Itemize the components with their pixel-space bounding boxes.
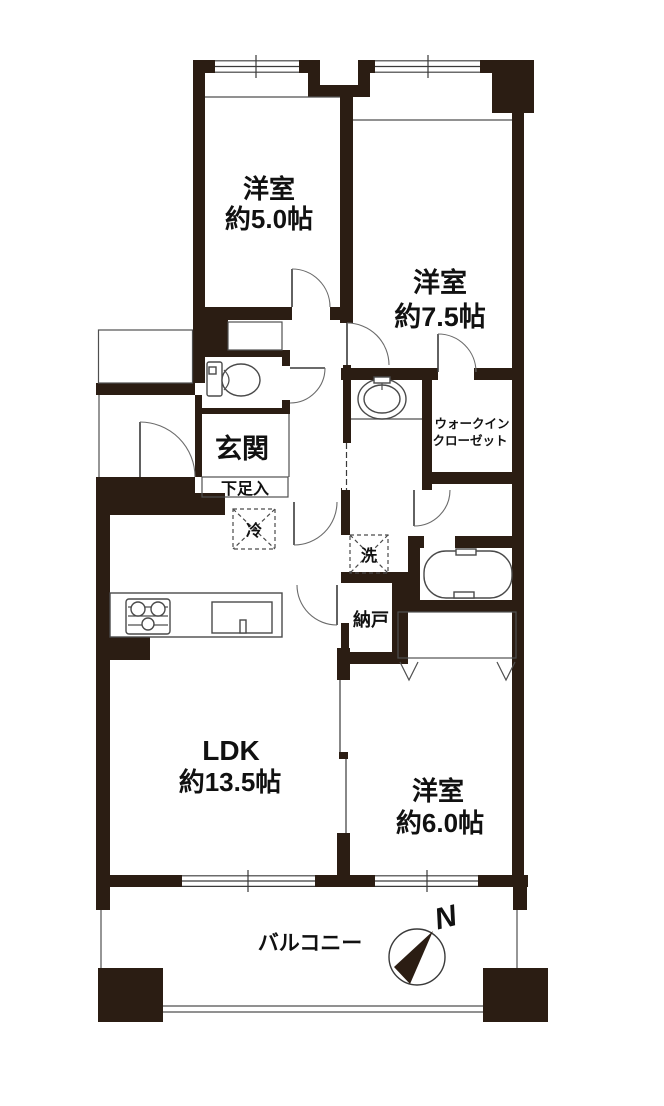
pipe-space: [228, 322, 282, 350]
bedroom-5-size: 約5.0帖: [225, 204, 313, 234]
sliding-door-washroom: [342, 443, 351, 490]
bedroom-5-label: 洋室: [243, 174, 295, 204]
closet-door-marks: [400, 662, 515, 680]
window-bedroom5: [215, 55, 299, 78]
entrance-label: 玄関: [215, 433, 269, 464]
window-bedroom6-balcony: [375, 870, 478, 892]
entry-alcove: [99, 330, 193, 383]
toilet-icon: [207, 362, 260, 396]
door-entrance: [140, 422, 195, 477]
floor-plan: 洋室 約5.0帖 洋室 約7.5帖 玄関 下足入 ウォークイン クローゼット 冷…: [0, 0, 664, 1106]
bedroom-6-size: 約6.0帖: [396, 808, 484, 838]
door-bathroom: [414, 490, 450, 526]
bathtub-icon: [424, 549, 512, 598]
compass-north-label: N: [431, 899, 461, 937]
walk-in-closet-label-line2: クローゼット: [432, 433, 507, 448]
shoe-cabinet-label: 下足入: [221, 480, 269, 498]
fridge-label: 冷: [246, 521, 262, 540]
door-bedroom75: [347, 323, 389, 365]
storage-label: 納戸: [353, 609, 389, 630]
sliding-partition-ldk-bedroom6: [337, 680, 350, 833]
stove-icon: [126, 599, 170, 634]
door-hallway: [294, 502, 337, 545]
floor-plan-svg: 洋室 約5.0帖 洋室 約7.5帖 玄関 下足入 ウォークイン クローゼット 冷…: [0, 0, 664, 1106]
walk-in-closet-label-line1: ウォークイン: [434, 417, 509, 431]
balcony-label: バルコニー: [258, 932, 363, 955]
ldk-size: 約13.5帖: [179, 767, 282, 797]
compass-icon: [389, 929, 445, 985]
washbasin-icon: [358, 377, 406, 419]
door-bedroom5: [292, 269, 330, 307]
closet-box: [398, 612, 516, 658]
bedroom-75-size: 約7.5帖: [394, 301, 486, 332]
window-bedroom75: [375, 55, 480, 78]
kitchen-sink-icon: [212, 602, 272, 633]
walls: [96, 60, 548, 1022]
door-storage: [297, 585, 337, 625]
ldk-label: LDK: [202, 735, 260, 766]
washer-label: 洗: [361, 546, 377, 565]
door-walk-in-closet: [438, 334, 476, 372]
bedroom-75-label: 洋室: [413, 267, 467, 298]
bedroom-6-label: 洋室: [412, 776, 464, 806]
door-toilet: [290, 368, 325, 403]
window-ldk-balcony: [182, 870, 315, 892]
